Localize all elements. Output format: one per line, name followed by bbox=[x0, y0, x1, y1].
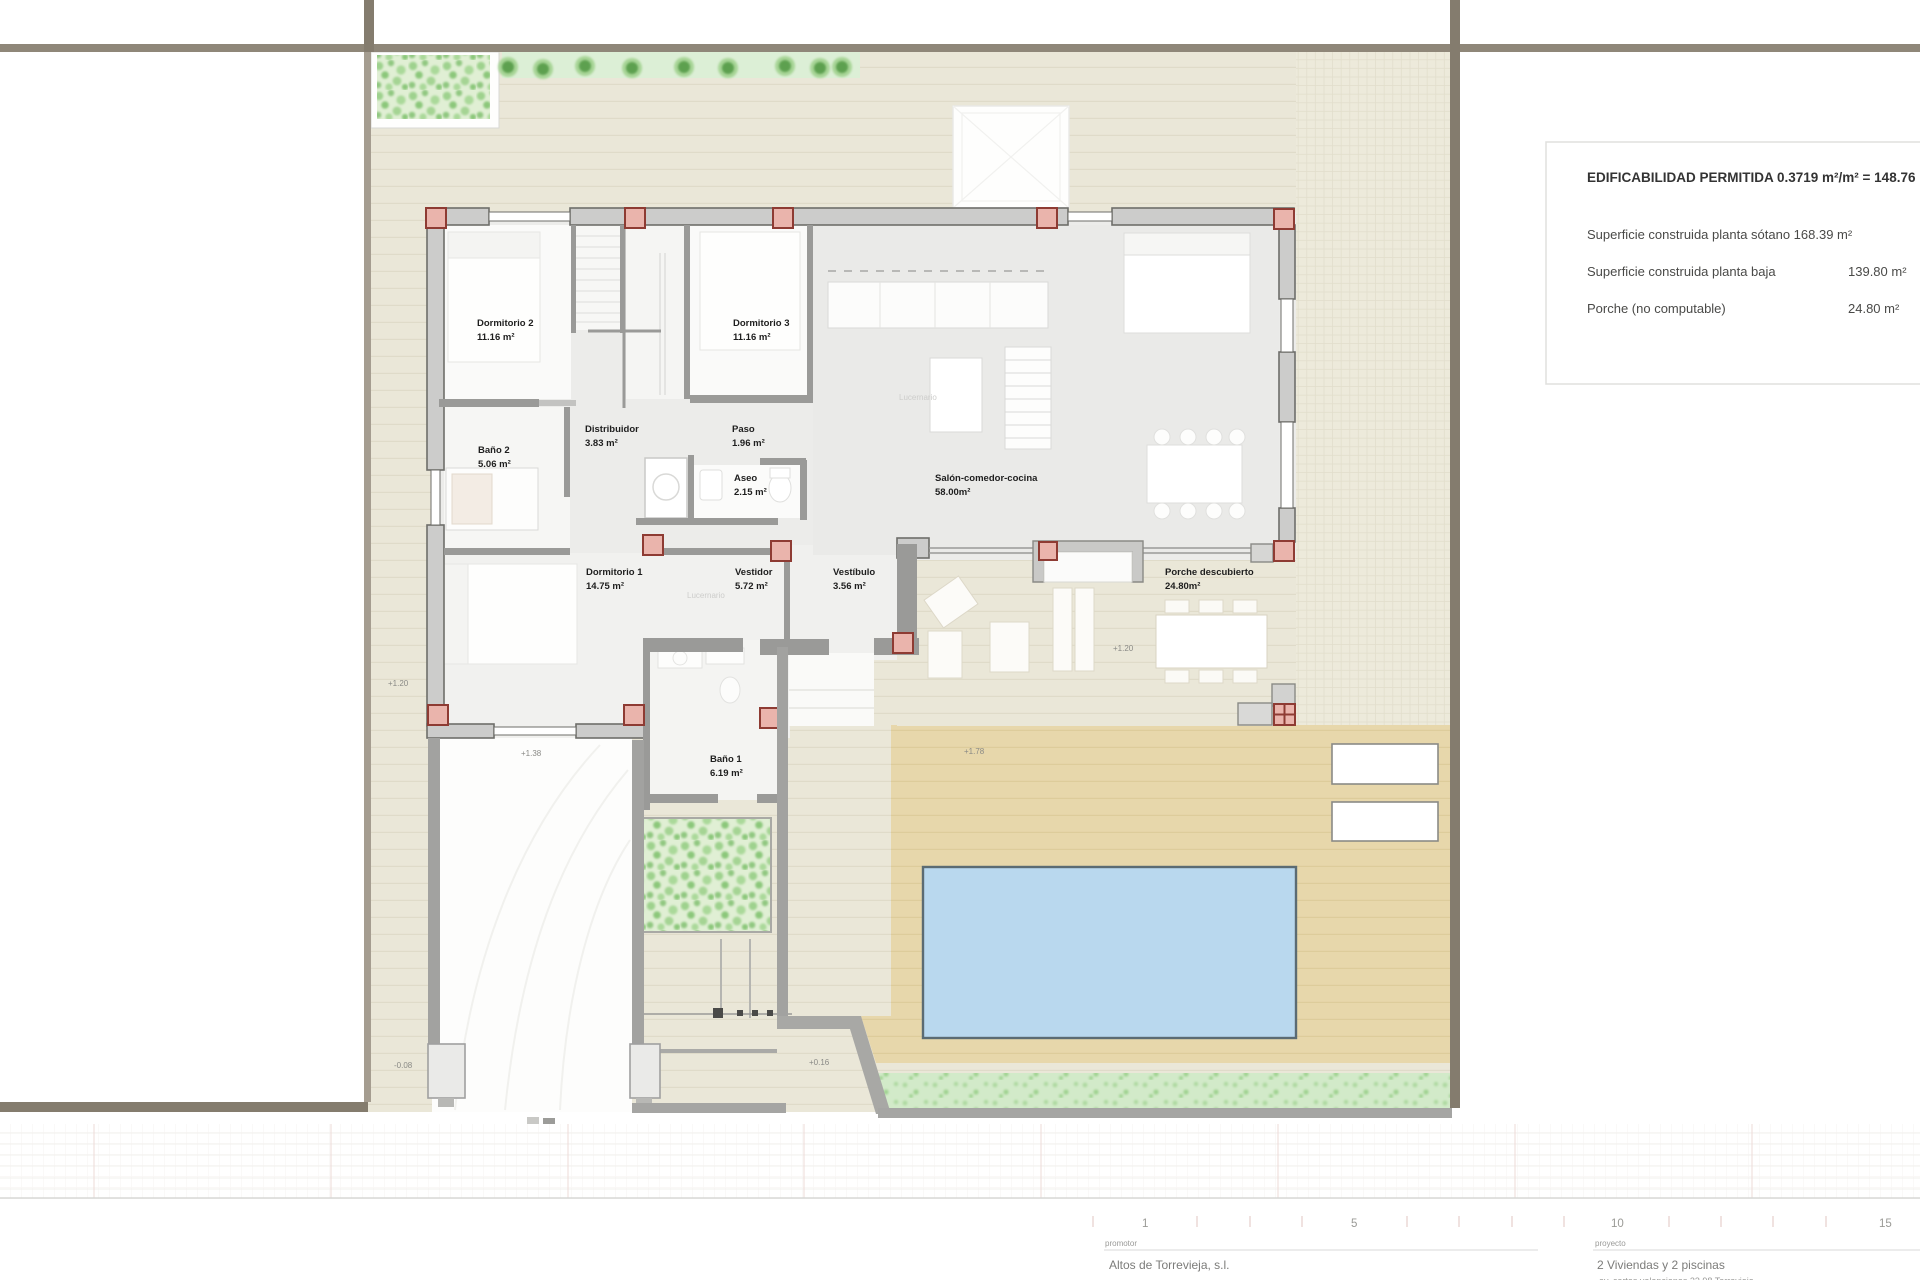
svg-text:Vestidor: Vestidor bbox=[735, 567, 773, 578]
svg-text:Distribuidor: Distribuidor bbox=[585, 424, 639, 435]
svg-text:11.16 m²: 11.16 m² bbox=[733, 332, 771, 343]
svg-text:5.06 m²: 5.06 m² bbox=[478, 459, 511, 470]
svg-text:2.15 m²: 2.15 m² bbox=[734, 487, 767, 498]
svg-text:Paso: Paso bbox=[732, 424, 755, 435]
svg-text:Altos de Torrevieja, s.l.: Altos de Torrevieja, s.l. bbox=[1109, 1258, 1230, 1272]
svg-text:Baño 2: Baño 2 bbox=[478, 445, 510, 456]
svg-text:Vestíbulo: Vestíbulo bbox=[833, 567, 875, 578]
svg-text:+1.20: +1.20 bbox=[388, 679, 409, 688]
svg-text:EDIFICABILIDAD PERMITIDA 0.371: EDIFICABILIDAD PERMITIDA 0.3719 m²/m² = … bbox=[1587, 170, 1916, 185]
svg-text:Baño 1: Baño 1 bbox=[710, 754, 742, 765]
svg-text:Aseo: Aseo bbox=[734, 473, 757, 484]
svg-text:Dormitorio 3: Dormitorio 3 bbox=[733, 318, 789, 329]
svg-text:Lucernario: Lucernario bbox=[687, 591, 725, 600]
svg-text:av. cortes valencianas 23.98 T: av. cortes valencianas 23.98 Torrevieja bbox=[1599, 1276, 1754, 1280]
svg-text:6.19 m²: 6.19 m² bbox=[710, 768, 743, 779]
svg-text:-0.08: -0.08 bbox=[394, 1061, 413, 1070]
svg-text:Superficie construida planta s: Superficie construida planta sótano 168.… bbox=[1587, 227, 1853, 242]
svg-text:+1.78: +1.78 bbox=[964, 747, 985, 756]
svg-text:Dormitorio 2: Dormitorio 2 bbox=[477, 318, 533, 329]
svg-text:Porche descubierto: Porche descubierto bbox=[1165, 567, 1254, 578]
svg-text:14.75 m²: 14.75 m² bbox=[586, 581, 624, 592]
svg-text:15: 15 bbox=[1879, 1218, 1892, 1230]
svg-text:1: 1 bbox=[1142, 1218, 1148, 1230]
svg-text:proyecto: proyecto bbox=[1595, 1239, 1626, 1248]
svg-text:11.16 m²: 11.16 m² bbox=[477, 332, 515, 343]
svg-text:Dormitorio 1: Dormitorio 1 bbox=[586, 567, 643, 578]
svg-text:3.56 m²: 3.56 m² bbox=[833, 581, 866, 592]
svg-text:3.83 m²: 3.83 m² bbox=[585, 438, 618, 449]
svg-text:24.80m²: 24.80m² bbox=[1165, 581, 1200, 592]
svg-text:139.80 m²: 139.80 m² bbox=[1848, 264, 1907, 279]
svg-text:5: 5 bbox=[1351, 1218, 1357, 1230]
svg-text:+1.38: +1.38 bbox=[521, 749, 542, 758]
svg-text:Lucernario: Lucernario bbox=[899, 393, 937, 402]
svg-text:+1.20: +1.20 bbox=[1113, 644, 1134, 653]
svg-text:Superficie construida planta b: Superficie construida planta baja bbox=[1587, 264, 1776, 279]
svg-text:2 Viviendas y 2 piscinas: 2 Viviendas y 2 piscinas bbox=[1597, 1258, 1725, 1272]
svg-text:24.80 m²: 24.80 m² bbox=[1848, 301, 1900, 316]
svg-text:Salón-comedor-cocina: Salón-comedor-cocina bbox=[935, 473, 1038, 484]
svg-text:Porche (no computable): Porche (no computable) bbox=[1587, 301, 1726, 316]
svg-text:+0.16: +0.16 bbox=[809, 1058, 830, 1067]
svg-text:5.72 m²: 5.72 m² bbox=[735, 581, 768, 592]
svg-text:58.00m²: 58.00m² bbox=[935, 487, 970, 498]
svg-text:promotor: promotor bbox=[1105, 1239, 1137, 1248]
svg-text:10: 10 bbox=[1611, 1218, 1624, 1230]
svg-text:1.96 m²: 1.96 m² bbox=[732, 438, 765, 449]
